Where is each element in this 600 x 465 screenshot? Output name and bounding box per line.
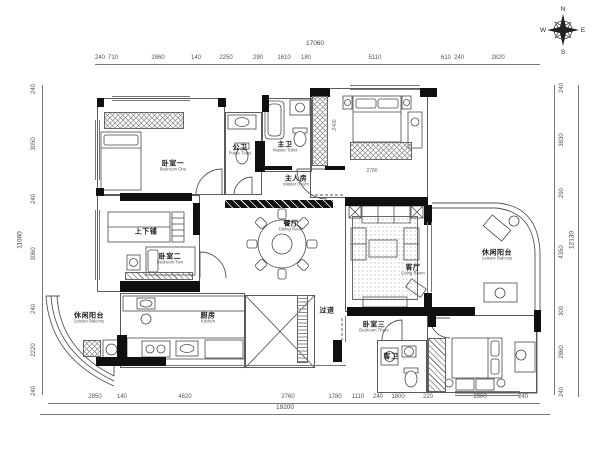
dim-label: 610	[441, 55, 451, 61]
room-label-balcony-right: 休闲阳台 Leisure Balcony	[479, 250, 515, 263]
dim-label: 300	[559, 306, 565, 316]
wall-segment	[424, 293, 432, 308]
dim-label: 2820	[491, 55, 504, 61]
dim-label: 1780	[328, 394, 341, 400]
radiator-hatch	[125, 272, 193, 280]
room-label-hallway: 过道	[320, 307, 335, 314]
room-label-guest-toilet: 客卫	[384, 353, 399, 360]
dim-label: 2960	[473, 394, 486, 400]
shaft-hatch	[297, 295, 308, 363]
wall-segment	[96, 188, 104, 196]
dim-label: 240	[559, 83, 565, 93]
compass-rose: N E S W	[540, 6, 586, 56]
compass-north-label: N	[561, 6, 566, 13]
dining-table-set	[247, 209, 317, 279]
dim-label: 4350	[559, 245, 565, 258]
dim-label: 240	[454, 55, 464, 61]
wine-cabinet-wall	[225, 200, 333, 208]
room-label-balcony-left: 休闲阳台 Leisure Balcony	[71, 313, 107, 326]
wall-segment	[96, 357, 166, 366]
dim-label: 3830	[559, 133, 565, 146]
dim-label: 5110	[369, 55, 382, 61]
room-label-bedroom-two: 卧室二 Bedroom Two	[155, 254, 186, 267]
wall-segment	[420, 88, 437, 97]
wall-segment	[325, 166, 345, 170]
dim-label: 240	[373, 394, 383, 400]
dim-line-top	[95, 64, 540, 65]
room-master-toilet-outline	[262, 98, 312, 172]
master-wardrobe-hatch	[350, 142, 412, 160]
living-room-rug	[352, 216, 418, 300]
wall-line-hall-east	[345, 316, 346, 342]
wall-segment	[97, 98, 104, 107]
dim-label: 1110	[352, 394, 364, 400]
wall-segment	[345, 197, 428, 206]
dim-overall-top: 17060	[306, 40, 324, 47]
wall-segment	[218, 98, 226, 107]
dim-label: 710	[108, 55, 118, 61]
dim-line-bottom-overall	[40, 414, 550, 415]
dim-label: 240	[31, 304, 37, 314]
wall-segment	[193, 203, 200, 235]
room-label-bedroom-one: 卧室一 Bedroom One	[157, 161, 188, 174]
dim-label: 2860	[559, 345, 565, 358]
window	[455, 391, 520, 396]
dim-line-left	[42, 85, 43, 395]
wall-segment	[428, 315, 436, 327]
balcony-cabinet-hatch	[83, 340, 101, 357]
compass-east-label: E	[581, 27, 586, 34]
room-guest-toilet-outline	[377, 340, 427, 393]
dim-label: 220	[423, 394, 433, 400]
dim-label: 240	[31, 194, 37, 204]
dim-label: 180	[301, 55, 311, 61]
floorplan-canvas: N E S W	[0, 0, 600, 465]
dim-label: 3050	[31, 137, 37, 150]
dim-label: 240	[559, 387, 565, 397]
compass-south-label: S	[561, 49, 566, 56]
interior-dim-label: 2400	[332, 119, 338, 130]
wall-segment	[262, 95, 269, 112]
window	[112, 96, 190, 101]
dim-label: 240	[95, 55, 105, 61]
room-label-bunk-bed: 上下铺	[135, 228, 158, 235]
bedroom-two-door-arc[interactable]	[200, 252, 226, 278]
dim-label: 3060	[31, 247, 37, 260]
cabinet-strip-hatch	[312, 96, 328, 166]
window	[95, 210, 100, 280]
room-label-public-toilet: 公卫 Public Toilet	[227, 145, 254, 158]
dim-line-right-overall	[578, 85, 579, 397]
interior-dim-label: 2780	[366, 168, 377, 174]
room-label-kitchen: 厨房 Kitchen	[200, 313, 217, 326]
wall-segment	[262, 166, 292, 170]
dim-label: 4620	[178, 394, 191, 400]
dim-label: 140	[191, 55, 201, 61]
dim-label: 2760	[281, 394, 294, 400]
wall-segment	[534, 310, 541, 332]
room-label-bedroom-three: 卧室三 Bedroom Three	[357, 322, 392, 335]
room-label-master-toilet: 主卫 Master Toilet	[271, 142, 299, 155]
window	[350, 85, 420, 90]
dim-overall-bottom: 19200	[276, 404, 294, 411]
dim-label: 240	[31, 84, 37, 94]
dim-overall-left: 11060	[17, 231, 24, 249]
dim-label: 140	[117, 394, 127, 400]
wall-segment	[120, 281, 200, 292]
tv-feature-wall	[347, 307, 475, 316]
wall-segment	[120, 193, 192, 201]
room-label-dining: 餐厅 Dining Room	[277, 221, 306, 234]
window	[95, 120, 100, 180]
dim-label: 1610	[277, 55, 290, 61]
compass-west-label: W	[540, 27, 547, 34]
wardrobe-hatch	[104, 112, 184, 129]
room-label-living: 客厅 Living Room	[399, 265, 427, 278]
dim-line-right	[554, 85, 555, 395]
wall-line-kitchen-south	[166, 365, 346, 366]
dim-label: 1800	[391, 394, 404, 400]
dim-label: 240	[518, 394, 528, 400]
dim-label: 2220	[31, 343, 37, 356]
dim-label: 2250	[219, 55, 232, 61]
dim-label: 290	[559, 188, 565, 198]
bedroom-three-wardrobe-hatch	[428, 338, 446, 392]
wall-segment	[333, 340, 342, 362]
dim-label: 2860	[151, 55, 164, 61]
room-label-master-room: 主人房 Master Room	[281, 176, 311, 189]
dim-label: 2850	[88, 394, 101, 400]
window	[427, 222, 432, 292]
dim-overall-right: 12130	[569, 231, 576, 249]
dim-label: 290	[253, 55, 263, 61]
dim-label: 240	[31, 386, 37, 396]
